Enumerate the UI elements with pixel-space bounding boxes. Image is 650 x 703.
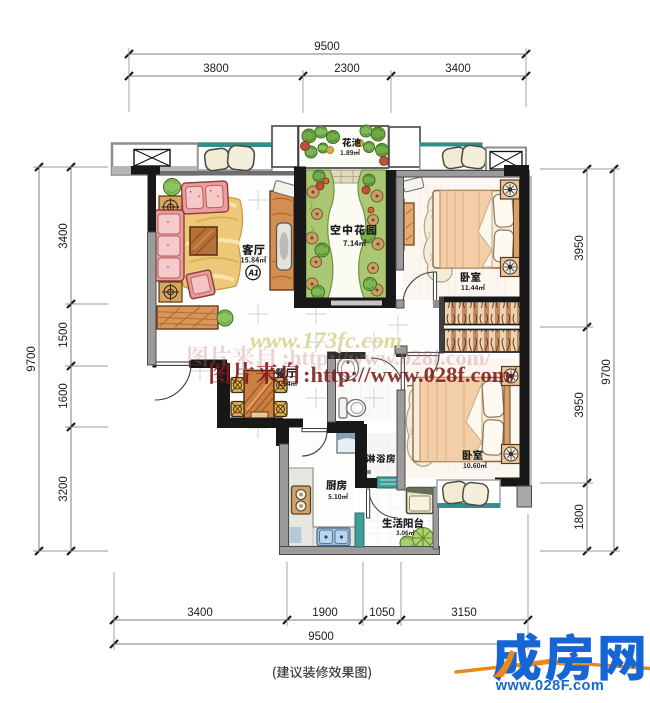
svg-text:3950: 3950 — [574, 235, 586, 261]
svg-text:3200: 3200 — [58, 476, 70, 502]
svg-text:9700: 9700 — [601, 359, 613, 385]
svg-text:3400: 3400 — [445, 63, 471, 75]
svg-text::http://www.028f.com/: :http://www.028f.com/ — [303, 362, 517, 387]
svg-text:1600: 1600 — [58, 383, 70, 409]
svg-text:3800: 3800 — [203, 63, 229, 75]
svg-text:3950: 3950 — [574, 392, 586, 418]
svg-text:9500: 9500 — [314, 41, 340, 53]
svg-text:1800: 1800 — [574, 504, 586, 530]
svg-text:3400: 3400 — [58, 223, 70, 249]
svg-text:3150: 3150 — [451, 607, 477, 619]
svg-text:9500: 9500 — [308, 631, 334, 643]
svg-text:1900: 1900 — [312, 607, 338, 619]
svg-text:1050: 1050 — [369, 607, 395, 619]
svg-text:1500: 1500 — [58, 322, 70, 348]
svg-text:2300: 2300 — [334, 63, 360, 75]
svg-text:9700: 9700 — [26, 346, 38, 372]
svg-text:3400: 3400 — [187, 607, 213, 619]
svg-text:www.028F.com: www.028F.com — [495, 678, 605, 694]
